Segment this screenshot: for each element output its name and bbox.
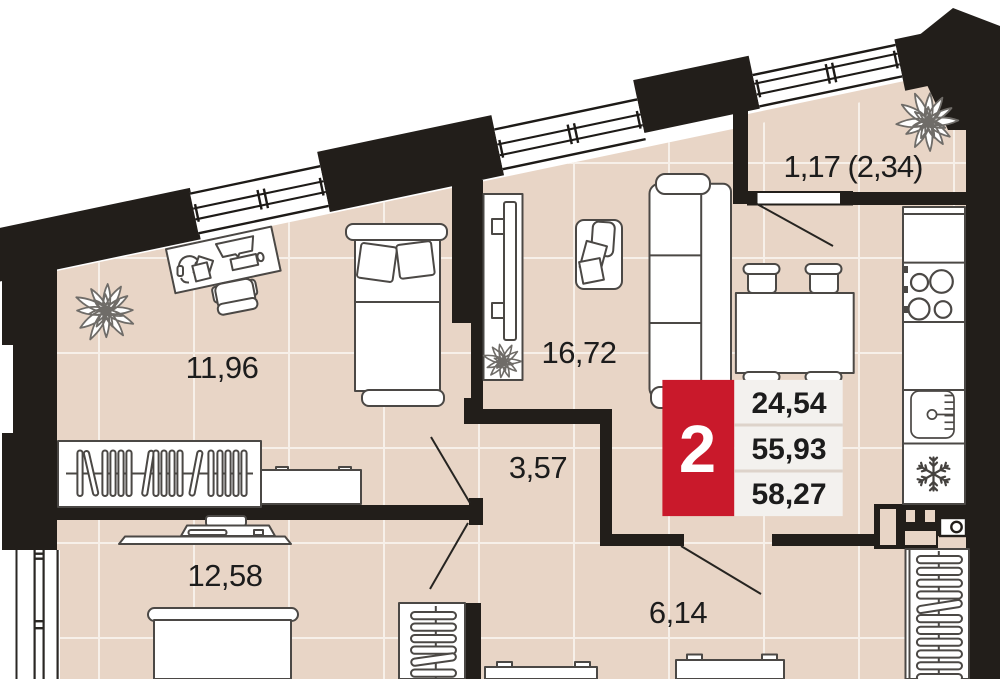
svg-text:55,93: 55,93 bbox=[751, 433, 826, 466]
svg-text:12,58: 12,58 bbox=[187, 558, 262, 593]
svg-text:6,14: 6,14 bbox=[649, 595, 708, 630]
svg-text:1,17 (2,34): 1,17 (2,34) bbox=[784, 149, 923, 184]
svg-text:11,96: 11,96 bbox=[186, 350, 259, 385]
svg-text:24,54: 24,54 bbox=[751, 387, 826, 420]
svg-text:2: 2 bbox=[679, 412, 716, 487]
svg-text:3,57: 3,57 bbox=[509, 450, 567, 485]
svg-text:58,27: 58,27 bbox=[751, 478, 826, 511]
svg-text:16,72: 16,72 bbox=[541, 335, 616, 370]
